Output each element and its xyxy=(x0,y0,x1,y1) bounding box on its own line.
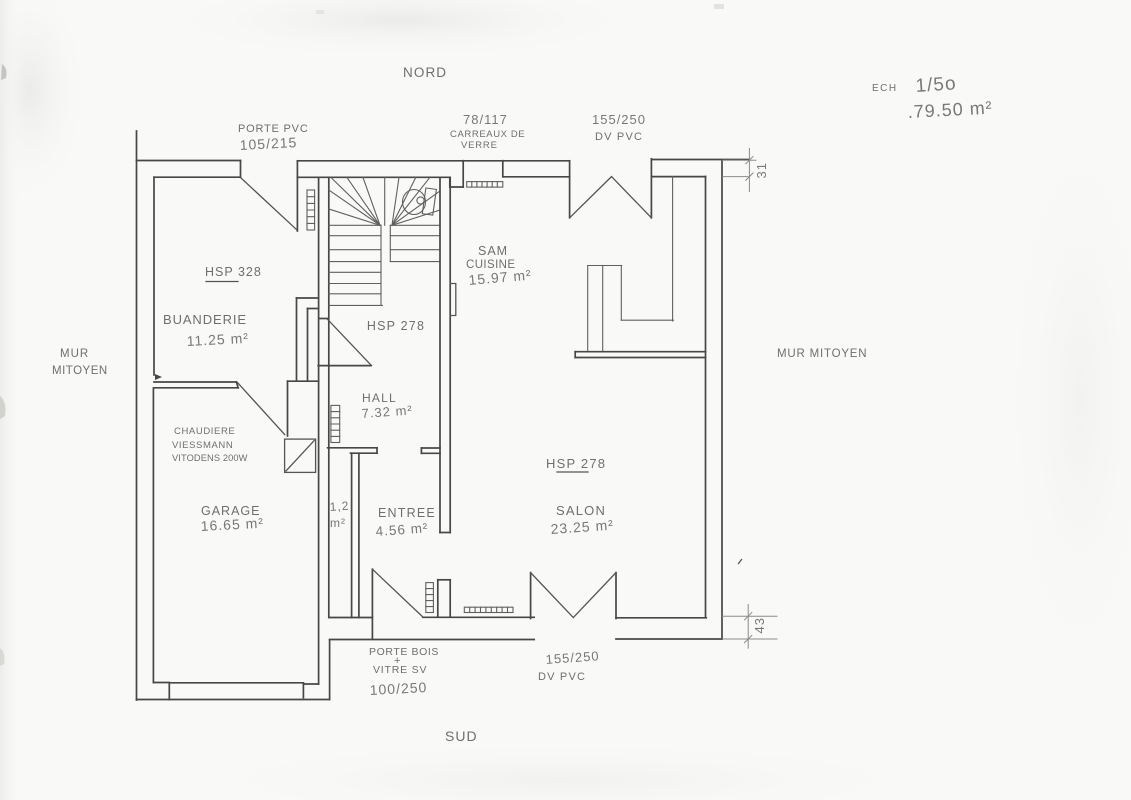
svg-text:CARREAUX DE: CARREAUX DE xyxy=(450,129,525,140)
svg-text:105/215: 105/215 xyxy=(239,134,297,153)
svg-text:CHAUDIERE: CHAUDIERE xyxy=(174,426,235,437)
svg-text:1/5o: 1/5o xyxy=(915,73,957,97)
svg-text:HSP 278: HSP 278 xyxy=(367,319,425,333)
svg-text:155/250: 155/250 xyxy=(592,112,646,127)
svg-text:VITRE SV: VITRE SV xyxy=(373,664,427,676)
svg-text:78/117: 78/117 xyxy=(463,112,508,127)
svg-text:PORTE BOIS: PORTE BOIS xyxy=(369,646,439,658)
svg-text:1,2: 1,2 xyxy=(329,499,350,514)
svg-text:SUD: SUD xyxy=(445,728,478,744)
svg-text:VITODENS 200W: VITODENS 200W xyxy=(172,453,248,463)
svg-text:VERRE: VERRE xyxy=(461,140,498,151)
svg-text:MUR: MUR xyxy=(60,348,89,360)
svg-text:HSP 278: HSP 278 xyxy=(546,456,606,471)
svg-text:HALL: HALL xyxy=(362,391,397,405)
svg-text:ENTREE: ENTREE xyxy=(378,506,436,520)
svg-text:MUR MITOYEN: MUR MITOYEN xyxy=(777,348,867,360)
svg-text:43: 43 xyxy=(752,617,767,633)
svg-text:BUANDERIE: BUANDERIE xyxy=(163,312,247,327)
svg-text:11.25 m²: 11.25 m² xyxy=(186,330,249,349)
svg-text:VIESSMANN: VIESSMANN xyxy=(172,440,233,451)
svg-text:PORTE PVC: PORTE PVC xyxy=(238,123,309,135)
svg-text:NORD: NORD xyxy=(403,65,447,80)
svg-text:100/250: 100/250 xyxy=(369,679,427,698)
svg-text:SALON: SALON xyxy=(556,503,606,518)
svg-text:DV PVC: DV PVC xyxy=(595,131,643,143)
svg-text:ECH: ECH xyxy=(872,83,898,94)
svg-text:DV PVC: DV PVC xyxy=(538,671,586,683)
svg-text:m²: m² xyxy=(330,516,346,530)
svg-text:SAM: SAM xyxy=(478,244,508,258)
svg-text:HSP 328: HSP 328 xyxy=(205,265,262,279)
svg-text:MITOYEN: MITOYEN xyxy=(52,365,108,377)
svg-text:16.65 m²: 16.65 m² xyxy=(200,515,264,534)
svg-text:31: 31 xyxy=(754,162,769,178)
